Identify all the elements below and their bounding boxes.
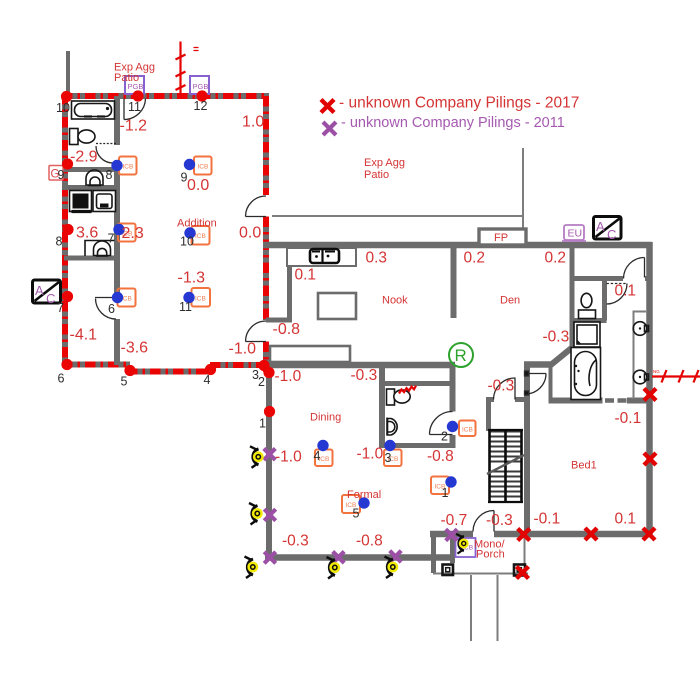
- svg-text:8: 8: [106, 168, 113, 182]
- svg-text:0.3: 0.3: [366, 250, 388, 267]
- svg-text:ICB: ICB: [123, 164, 134, 171]
- svg-text:0.1: 0.1: [295, 267, 317, 284]
- svg-text:-0.8: -0.8: [427, 448, 454, 465]
- svg-text:PGB: PGB: [193, 82, 209, 91]
- svg-text:R: R: [455, 346, 467, 365]
- svg-text:-0.8: -0.8: [273, 321, 301, 338]
- svg-text:9: 9: [181, 171, 188, 185]
- svg-text:10: 10: [56, 101, 70, 115]
- svg-text:-0.1: -0.1: [615, 410, 642, 427]
- svg-text:0.1: 0.1: [615, 283, 637, 300]
- svg-text:NG: NG: [653, 369, 660, 374]
- svg-text:-1.0: -1.0: [229, 341, 257, 358]
- svg-text:-4.1: -4.1: [70, 327, 98, 344]
- svg-text:-0.3: -0.3: [351, 367, 378, 384]
- svg-text:-0.7: -0.7: [441, 512, 468, 529]
- svg-text:8: 8: [56, 235, 63, 249]
- svg-text:0.0: 0.0: [187, 177, 209, 194]
- svg-text:4: 4: [204, 373, 211, 387]
- svg-text:7: 7: [57, 301, 64, 315]
- svg-text:9: 9: [58, 168, 65, 182]
- svg-text:2: 2: [258, 375, 265, 389]
- svg-text:0.0: 0.0: [239, 225, 261, 242]
- svg-text:-1.0: -1.0: [275, 368, 302, 385]
- svg-text:11: 11: [128, 100, 141, 114]
- svg-text:C: C: [607, 227, 616, 242]
- svg-text:A: A: [35, 283, 44, 298]
- svg-text:Bed1: Bed1: [571, 460, 597, 472]
- svg-text:6: 6: [108, 302, 115, 316]
- svg-text:-0.1: -0.1: [534, 511, 561, 528]
- svg-text:Den: Den: [500, 295, 520, 307]
- svg-text:-0.3: -0.3: [543, 329, 570, 346]
- svg-text:0.1: 0.1: [615, 511, 637, 528]
- svg-text:11: 11: [179, 300, 192, 314]
- svg-text:-0.3: -0.3: [282, 533, 309, 550]
- svg-text:12: 12: [194, 99, 208, 113]
- svg-text:-1.2: -1.2: [120, 118, 148, 135]
- svg-text:- unknown Company Pilings - 20: - unknown Company Pilings - 2017: [339, 95, 579, 112]
- svg-text:C: C: [46, 291, 55, 306]
- svg-text:5: 5: [121, 375, 128, 389]
- svg-text:7: 7: [108, 232, 115, 246]
- svg-text:FP: FP: [494, 232, 508, 244]
- svg-text:Addition: Addition: [177, 218, 217, 230]
- svg-text:-0.3: -0.3: [486, 512, 513, 529]
- svg-text:1: 1: [442, 486, 449, 500]
- svg-text:-1.0: -1.0: [357, 446, 384, 463]
- svg-text:A: A: [596, 219, 605, 234]
- svg-text:10: 10: [180, 235, 194, 249]
- svg-text:5: 5: [353, 507, 360, 521]
- svg-text:ICB: ICB: [195, 296, 206, 303]
- svg-text:1: 1: [259, 417, 266, 431]
- svg-text:ICB: ICB: [195, 233, 206, 240]
- svg-text:0.2: 0.2: [545, 250, 567, 267]
- svg-text:ICB: ICB: [198, 164, 209, 171]
- svg-text:Formal: Formal: [347, 489, 381, 501]
- svg-text:-3.6: -3.6: [121, 340, 149, 357]
- svg-text:3.6: 3.6: [76, 225, 98, 242]
- svg-text:ICB: ICB: [462, 427, 473, 434]
- svg-text:Patio: Patio: [364, 169, 389, 181]
- svg-text:Dining: Dining: [310, 412, 341, 424]
- svg-text:-2.9: -2.9: [70, 149, 98, 166]
- svg-text:-1.3: -1.3: [178, 270, 206, 287]
- svg-text:-1.0: -1.0: [275, 449, 302, 466]
- svg-text:2: 2: [441, 430, 448, 444]
- svg-text:2.3: 2.3: [122, 225, 144, 242]
- svg-text:4: 4: [314, 449, 321, 463]
- svg-text:-0.8: -0.8: [356, 533, 383, 550]
- svg-text:Patio: Patio: [114, 72, 139, 84]
- svg-text:6: 6: [58, 372, 65, 386]
- svg-text:3: 3: [385, 451, 392, 465]
- svg-text:EU: EU: [568, 228, 583, 240]
- svg-text:Nook: Nook: [382, 295, 408, 307]
- svg-text:Exp Agg: Exp Agg: [364, 157, 405, 169]
- svg-text:1.0: 1.0: [242, 114, 264, 131]
- svg-text:Porch: Porch: [476, 549, 505, 561]
- svg-text:0.2: 0.2: [464, 250, 486, 267]
- svg-text:- unknown Company Pilings - 20: - unknown Company Pilings - 2011: [341, 115, 565, 131]
- svg-text:-0.3: -0.3: [488, 378, 515, 395]
